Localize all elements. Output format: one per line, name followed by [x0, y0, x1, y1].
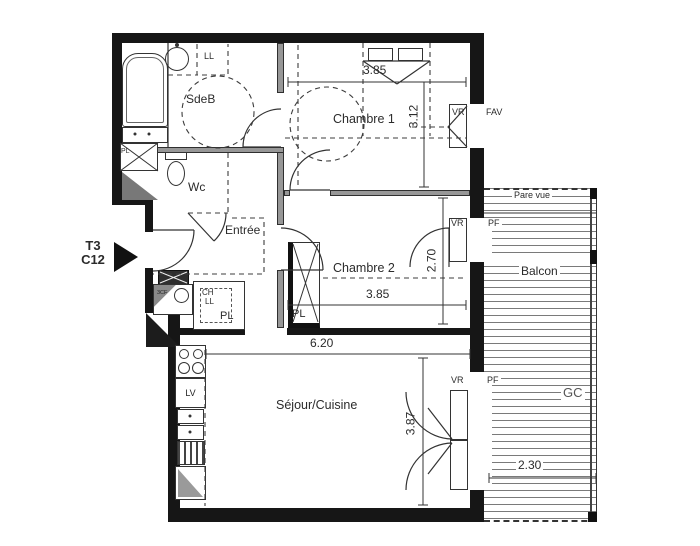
sdeb-door-arc — [243, 109, 281, 147]
dim-chambre1-width: 3.85 — [363, 64, 386, 77]
washer-closet-label: LL — [205, 298, 214, 306]
sejour-shutter-label: VR — [451, 376, 464, 385]
chambre1-door-arc — [290, 150, 330, 190]
dim-ch1-d-line — [419, 82, 429, 187]
sejour-door-arcs — [406, 392, 452, 490]
chambre2-closet-label: PL — [292, 309, 305, 321]
room-label-chambre1: Chambre 1 — [333, 113, 395, 126]
washer-label: LL — [204, 52, 214, 61]
chambre1-window-label: FAV — [486, 108, 502, 117]
dim-sejour-w-line — [206, 349, 470, 359]
sejour-door-label: PF — [485, 376, 501, 385]
washer-slot — [168, 44, 228, 75]
room-label-balcon: Balcon — [519, 265, 560, 278]
room-label-sejour: Séjour/Cuisine — [276, 399, 357, 412]
dim-balcon-line — [489, 473, 596, 483]
dim-ch1-w-line — [288, 77, 466, 87]
bath-closet-label: PL — [121, 148, 130, 155]
unit-type: T3 — [74, 239, 112, 253]
entrance-arrow-icon — [114, 242, 138, 272]
dim-balcon-width: 2.30 — [516, 459, 543, 472]
entrance-door-arc — [153, 230, 194, 271]
turning-circle-sdeb — [182, 76, 254, 148]
dimension-lines — [206, 77, 596, 505]
dim-ch2-w-line — [288, 300, 466, 310]
room-label-chambre2: Chambre 2 — [333, 262, 395, 275]
dim-chambre2-depth: 2.70 — [424, 246, 439, 276]
room-label-wc: Wc — [188, 181, 205, 194]
pare-vue-label: Pare vue — [512, 191, 552, 200]
hall-closet-label: PL — [220, 311, 233, 323]
unit-number: C12 — [74, 253, 112, 267]
dim-sejour-width: 6.20 — [310, 337, 333, 350]
dim-chambre2-width: 3.85 — [366, 288, 389, 301]
chambre2-door-label: PF — [486, 219, 502, 228]
dim-chambre1-depth: 3.12 — [406, 102, 421, 132]
dim-sejour-depth: 3.87 — [403, 409, 418, 439]
unit-marker: T3 C12 — [74, 239, 112, 266]
room-label-entree: Entrée — [225, 224, 260, 237]
meter-box-x — [160, 272, 187, 283]
room-label-sdeb: SdeB — [186, 93, 215, 106]
small-dots — [134, 43, 192, 434]
chambre1-shutter-label: VR — [452, 108, 465, 117]
chambre2-shutter-label: VR — [451, 219, 464, 228]
meter-box-label: 3CF — [157, 291, 167, 297]
floor-plan: LV — [0, 0, 700, 546]
gc-label: GC — [561, 386, 585, 400]
